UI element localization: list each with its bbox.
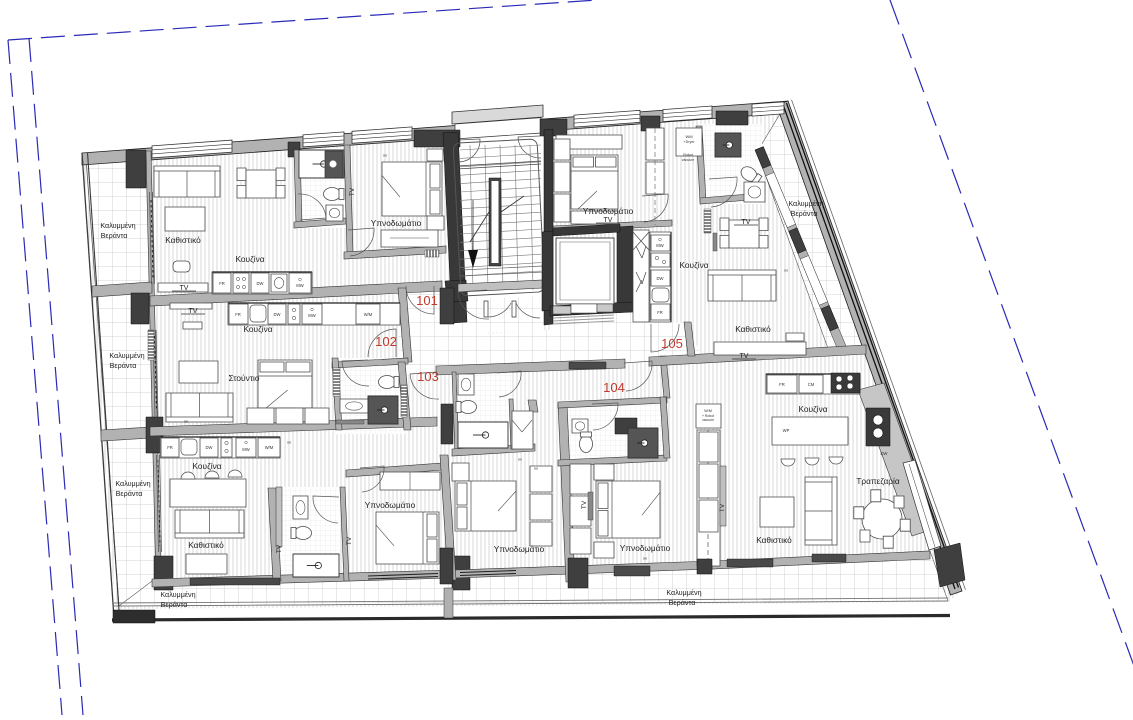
svg-text:TV: TV <box>719 503 726 512</box>
svg-text:DW: DW <box>657 276 664 281</box>
svg-text:FR: FR <box>779 382 785 387</box>
svg-text:W/M: W/M <box>704 409 712 413</box>
svg-text:Υπνοδωμάτιο: Υπνοδωμάτιο <box>494 544 545 554</box>
svg-text:Καλυμμένη: Καλυμμένη <box>160 590 195 599</box>
svg-text:+Dryer: +Dryer <box>684 140 696 144</box>
svg-text:Βεράντα: Βεράντα <box>116 489 143 498</box>
svg-text:Τραπεζαρία: Τραπεζαρία <box>856 476 899 486</box>
svg-text:Βεράντα: Βεράντα <box>101 231 128 240</box>
svg-text:Καθιστικό: Καθιστικό <box>188 540 224 550</box>
svg-text:WM: WM <box>685 134 692 139</box>
svg-text:101: 101 <box>416 293 438 308</box>
svg-text:MW: MW <box>656 243 663 248</box>
svg-text:Καλυμμένη: Καλυμμένη <box>788 199 823 208</box>
svg-text:H: H <box>534 466 537 471</box>
svg-text:TV: TV <box>346 536 353 545</box>
svg-text:Καλυμμένη: Καλυμμένη <box>115 479 150 488</box>
svg-text:DW: DW <box>881 451 888 456</box>
svg-text:Κουζίνα: Κουζίνα <box>235 254 264 264</box>
svg-text:W/M: W/M <box>265 445 274 450</box>
svg-text:H: H <box>383 153 386 158</box>
svg-text:MW: MW <box>242 447 249 452</box>
svg-text:Υπνοδωμάτιο: Υπνοδωμάτιο <box>365 500 416 510</box>
svg-text:FR: FR <box>219 281 225 286</box>
svg-text:MW: MW <box>308 313 315 318</box>
svg-text:Στούντιο: Στούντιο <box>229 373 260 383</box>
svg-text:102: 102 <box>375 334 397 349</box>
svg-text:Καθιστικό: Καθιστικό <box>756 535 792 545</box>
svg-text:H: H <box>643 556 646 561</box>
svg-text:W/M: W/M <box>364 312 373 317</box>
svg-text:vacuum: vacuum <box>682 158 695 162</box>
svg-text:Υπνοδωμάτιο: Υπνοδωμάτιο <box>583 206 634 216</box>
svg-text:H: H <box>518 457 521 462</box>
svg-text:DW: DW <box>257 281 264 286</box>
svg-text:Υπνοδωμάτιο: Υπνοδωμάτιο <box>371 218 422 228</box>
svg-text:TV: TV <box>581 500 588 509</box>
svg-text:H: H <box>287 440 290 445</box>
svg-text:TV: TV <box>276 544 283 553</box>
svg-text:H: H <box>184 419 187 424</box>
svg-text:Καλυμμένη: Καλυμμένη <box>100 221 135 230</box>
svg-text:TV: TV <box>349 187 356 196</box>
svg-text:DW: DW <box>274 312 281 317</box>
svg-text:Κουζίνα: Κουζίνα <box>243 324 272 334</box>
svg-text:105: 105 <box>661 336 683 351</box>
svg-text:Κουζίνα: Κουζίνα <box>798 404 827 414</box>
svg-text:vacuum: vacuum <box>702 418 714 422</box>
svg-text:Κουζίνα: Κουζίνα <box>679 260 708 270</box>
svg-text:Βεράντα: Βεράντα <box>110 361 137 370</box>
svg-text:Καλυμμένη: Καλυμμένη <box>109 351 144 360</box>
svg-text:Robot: Robot <box>683 153 693 157</box>
svg-text:Κουζίνα: Κουζίνα <box>192 461 221 471</box>
svg-text:H: H <box>784 268 787 273</box>
svg-text:Καλυμμένη: Καλυμμένη <box>666 588 701 597</box>
svg-text:MW: MW <box>296 283 303 288</box>
svg-text:Βεράντα: Βεράντα <box>161 600 188 609</box>
svg-text:104: 104 <box>603 380 625 395</box>
svg-text:Υπνοδωμάτιο: Υπνοδωμάτιο <box>620 543 671 553</box>
svg-text:Βεράντα: Βεράντα <box>791 209 818 218</box>
svg-text:103: 103 <box>417 369 439 384</box>
svg-text:Καθιστικό: Καθιστικό <box>165 235 201 245</box>
svg-text:DW: DW <box>206 445 213 450</box>
svg-text:FR: FR <box>235 312 241 317</box>
svg-text:FR: FR <box>657 310 663 315</box>
svg-text:CM: CM <box>808 382 815 387</box>
svg-text:Καθιστικό: Καθιστικό <box>735 324 771 334</box>
svg-text:Βεράντα: Βεράντα <box>669 598 696 607</box>
svg-text:WP: WP <box>783 428 790 433</box>
svg-text:FR: FR <box>167 445 173 450</box>
